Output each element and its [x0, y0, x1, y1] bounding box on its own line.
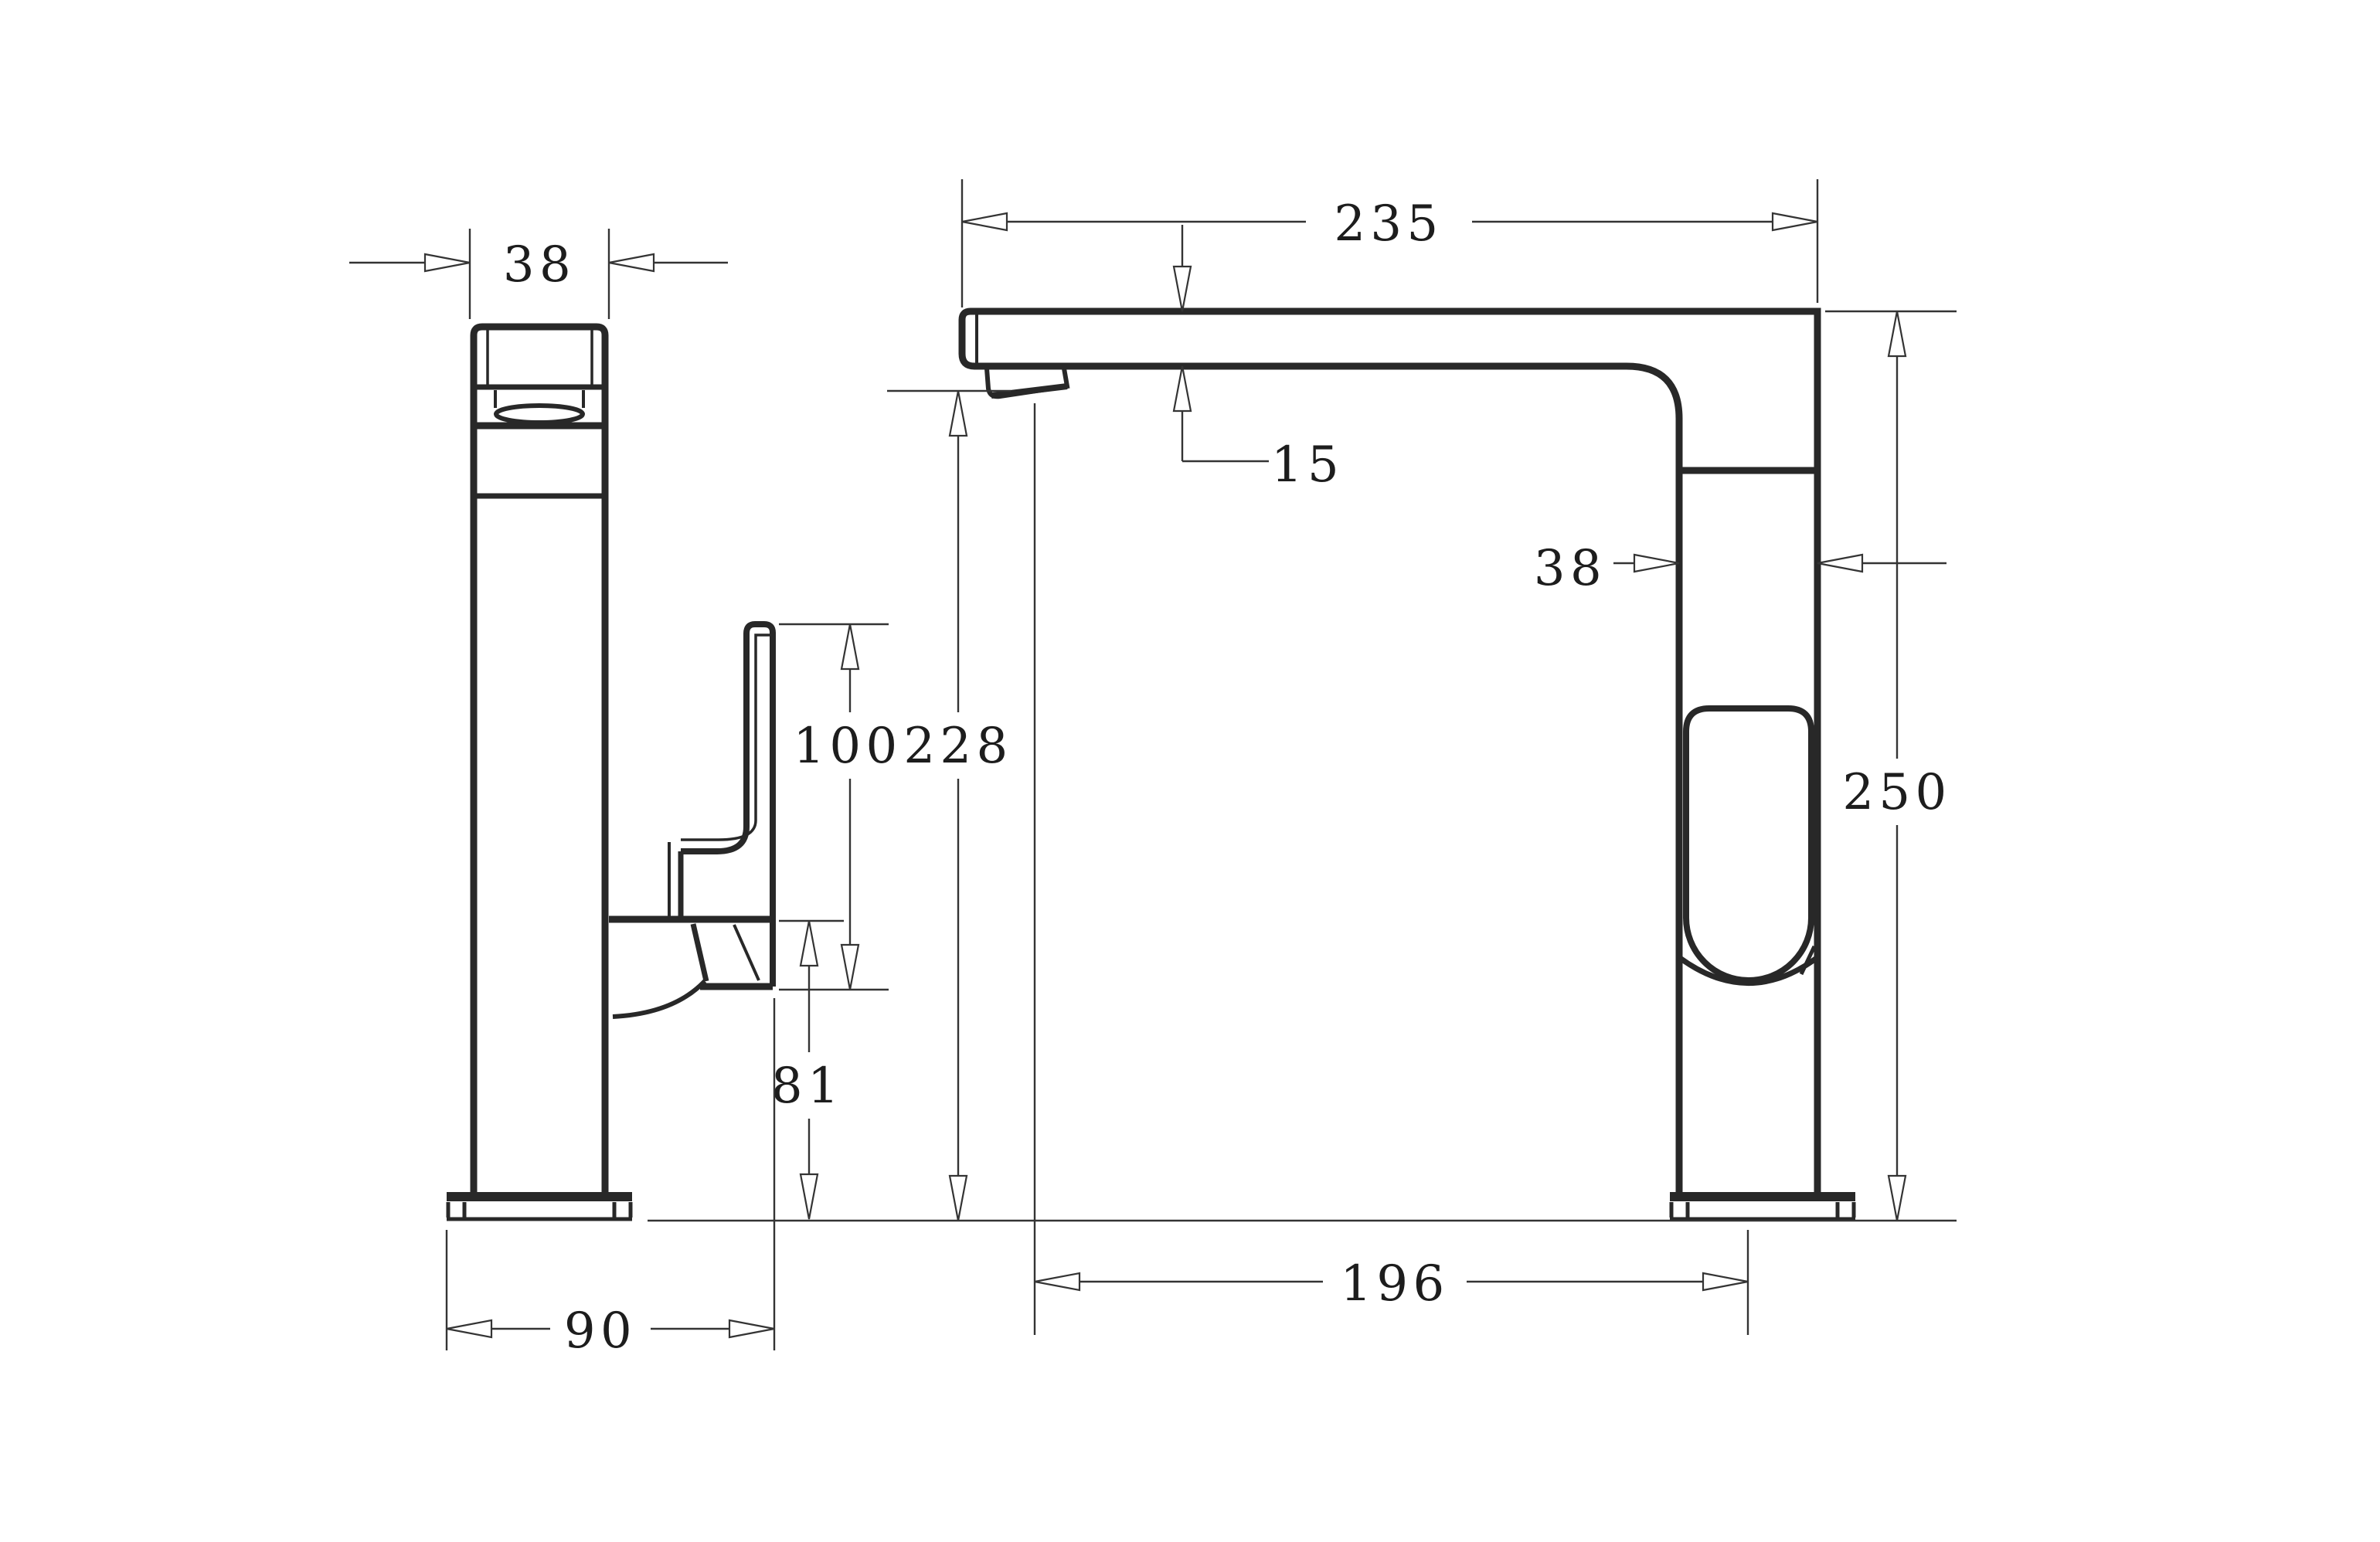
side-handle-base-arc	[613, 981, 705, 1017]
side-view	[447, 327, 773, 1219]
side-base-flange	[447, 1202, 632, 1219]
side-body-outline	[474, 327, 605, 1192]
dim-label-spout-thickness: 15	[1271, 436, 1344, 494]
side-head-inner-lines	[488, 329, 592, 385]
dim-label-overall-height: 250	[1842, 764, 1951, 821]
side-handle-blade-inner-line	[681, 635, 770, 840]
side-handle-base-slant	[693, 924, 706, 981]
front-view	[962, 311, 1855, 1219]
dim-100-lines	[779, 624, 889, 990]
faucet-dimension-drawing: 38 235 15 38 228 100 81 90 196	[0, 0, 2380, 1542]
dim-38-front-arrows	[1634, 555, 1862, 572]
dim-label-spout-reach: 235	[1334, 195, 1443, 253]
side-handle-base-crease	[734, 925, 759, 980]
dim-196-lines	[1035, 403, 1748, 1335]
dim-label-overall-depth: 90	[564, 1303, 637, 1360]
dim-90-lines	[447, 998, 774, 1350]
dim-label-handle-length: 100	[793, 718, 902, 775]
side-swivel-ring	[496, 406, 583, 423]
dim-15-arrows	[1174, 267, 1191, 411]
front-handle-capsule	[1686, 708, 1811, 980]
technical-drawing-sheet: 38 235 15 38 228 100 81 90 196	[0, 0, 2380, 1542]
dimension-annotations: 38 235 15 38 228 100 81 90 196	[349, 179, 1957, 1360]
dim-15-lines	[1182, 225, 1269, 461]
dim-label-base-height: 81	[771, 1058, 844, 1115]
dim-label-body-width: 38	[1534, 540, 1606, 597]
dim-label-outlet-reach: 196	[1340, 1255, 1449, 1313]
dim-label-outlet-height: 228	[903, 718, 1012, 775]
dim-250-lines	[1825, 311, 1957, 1176]
front-base-flange	[1670, 1202, 1855, 1219]
dim-228-lines	[887, 391, 1011, 1176]
dim-label-head-width: 38	[503, 236, 576, 294]
